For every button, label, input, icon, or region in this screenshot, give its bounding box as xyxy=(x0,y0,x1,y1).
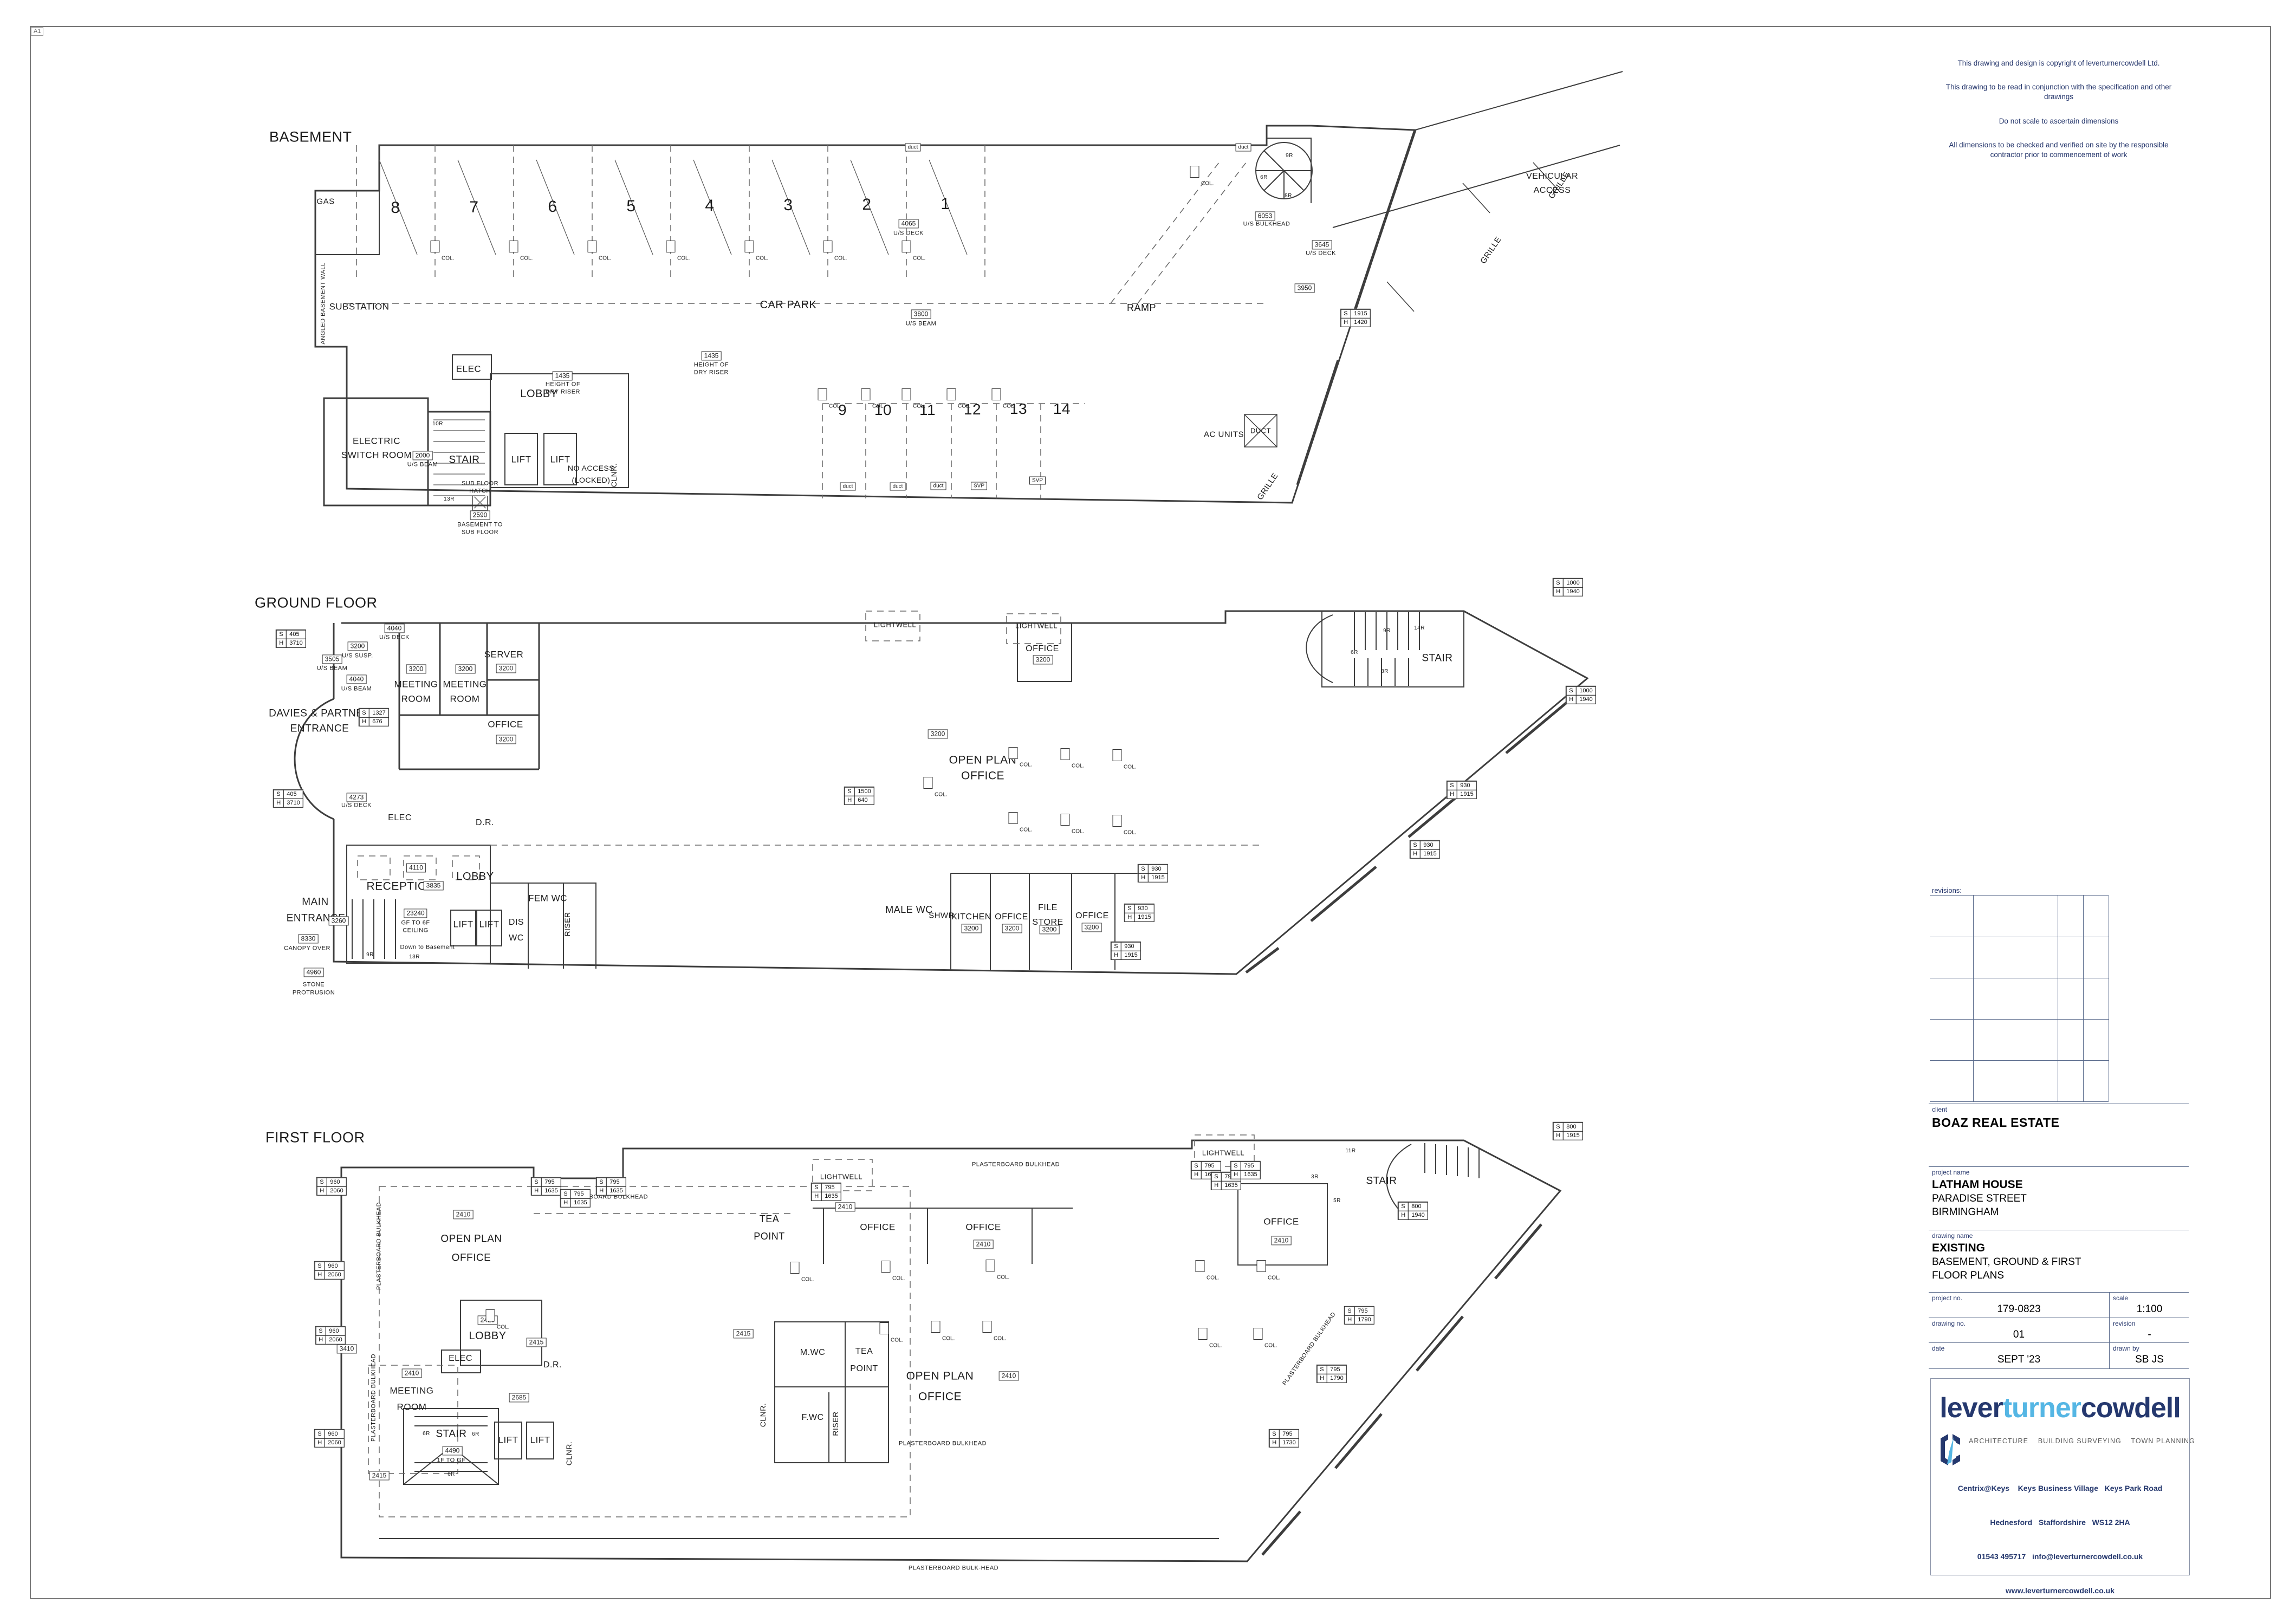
plan-label-clnr-: CLNR. xyxy=(610,463,618,488)
sh-cell: S xyxy=(273,789,284,799)
sh-cell: S xyxy=(316,1177,327,1186)
address-line-3: 01543 495717 info@leverturnercowdell.co.… xyxy=(1931,1551,2189,1562)
sh-cell: S xyxy=(1398,1202,1409,1211)
drawing-name-line3: FLOOR PLANS xyxy=(1929,1268,2189,1282)
plan-label-14r: 14R xyxy=(1414,626,1425,631)
dimension-box-duct: duct xyxy=(905,144,921,152)
plan-label-sub-floor: SUB FLOOR xyxy=(462,481,498,487)
column-marker xyxy=(431,241,440,252)
plan-label-11r: 11R xyxy=(1345,1149,1355,1154)
client-section: client BOAZ REAL ESTATE xyxy=(1929,1104,2189,1167)
column-marker xyxy=(924,777,933,789)
drawn-by-label: drawn by xyxy=(2110,1343,2189,1353)
plan-label-u-s-deck: U/S DECK xyxy=(341,803,372,809)
plan-label-3r: 3R xyxy=(1311,1175,1319,1180)
plan-label-riser: RISER xyxy=(832,1411,839,1436)
sh-cell: 1730 xyxy=(1279,1438,1299,1448)
column-label: COL. xyxy=(442,256,454,262)
sh-cell: 2060 xyxy=(327,1186,346,1196)
sh-cell: 1635 xyxy=(570,1198,590,1208)
plan-label-lightwell: LIGHTWELL xyxy=(820,1173,862,1180)
sh-cell: H xyxy=(1111,951,1121,960)
plan-label-d-r-: D.R. xyxy=(476,819,494,827)
sh-cell: 795 xyxy=(1327,1365,1346,1374)
plan-label-point: POINT xyxy=(754,1231,785,1241)
dimension-box-3260: 3260 xyxy=(329,916,349,925)
wordmark-cowdell: cowdell xyxy=(2081,1392,2181,1424)
project-no: 179-0823 xyxy=(1929,1303,2109,1315)
sh-cell: 2060 xyxy=(325,1270,344,1280)
address-line-1: Centrix@Keys Keys Business Village Keys … xyxy=(1931,1483,2189,1494)
plan-label-8r: 8R xyxy=(1285,193,1292,199)
plan-label-office: OFFICE xyxy=(995,913,1028,922)
sh-cell: S xyxy=(314,1261,325,1270)
project-name-line2: PARADISE STREET xyxy=(1929,1191,2189,1205)
sh-cell: 1327 xyxy=(369,708,388,717)
sh-cell: 795 xyxy=(570,1189,590,1198)
dimension-box-2415: 2415 xyxy=(369,1471,390,1480)
column-marker xyxy=(947,388,956,400)
plan-label-13r: 13R xyxy=(444,497,455,502)
structural-opening-dimension-box: S800H1915 xyxy=(1553,1122,1583,1140)
sh-cell: H xyxy=(1398,1211,1409,1220)
plan-label-lobby: LOBBY xyxy=(469,1331,506,1341)
sh-cell: S xyxy=(811,1183,822,1192)
date-value: SEPT '23 xyxy=(1929,1353,2109,1366)
column-label: COL. xyxy=(1264,1343,1277,1349)
structural-opening-dimension-box: S795H1635 xyxy=(1230,1161,1261,1179)
dimension-box-3505: 3505 xyxy=(322,654,342,664)
dimension-box-4110: 4110 xyxy=(406,863,426,872)
client-label: client xyxy=(1929,1104,2189,1114)
dimension-box-2410: 2410 xyxy=(453,1210,474,1219)
dimension-box-23240: 23240 xyxy=(404,909,427,918)
dimension-box-duct: duct xyxy=(1236,144,1251,152)
sh-cell: 1915 xyxy=(1420,849,1439,859)
title-block: This drawing and design is copyright of … xyxy=(1929,26,2189,1597)
sh-cell: 1790 xyxy=(1327,1374,1346,1383)
column-marker xyxy=(881,1261,891,1273)
structural-opening-dimension-box: S960H2060 xyxy=(314,1429,345,1448)
column-label: COL. xyxy=(1020,762,1032,768)
revisions-label: revisions: xyxy=(1932,886,1962,894)
plan-label-stone: STONE xyxy=(303,982,325,988)
column-marker xyxy=(1254,1328,1263,1340)
sh-cell: 2060 xyxy=(326,1335,345,1345)
dimension-box-3200: 3200 xyxy=(962,924,982,933)
plan-label-u-s-bulkhead: U/S BULKHEAD xyxy=(1243,222,1290,228)
plan-label-height-of: HEIGHT OF xyxy=(546,382,580,388)
sh-cell: 1635 xyxy=(1221,1181,1241,1190)
column-label: COL. xyxy=(520,256,533,262)
column-marker xyxy=(1061,814,1070,826)
project-section: project name LATHAM HOUSE PARADISE STREE… xyxy=(1929,1166,2189,1230)
sh-cell: 1940 xyxy=(1408,1211,1428,1220)
plan-label-office: OFFICE xyxy=(965,1223,1001,1232)
sh-cell: 676 xyxy=(369,717,388,726)
column-label: COL. xyxy=(1124,764,1136,770)
firm-logo-block: leverturnercowdell ARCHITECTURE BUILDING… xyxy=(1930,1378,2190,1575)
sh-cell: H xyxy=(844,796,855,805)
dimension-box-2410: 2410 xyxy=(974,1240,994,1249)
column-marker xyxy=(818,388,827,400)
column-marker xyxy=(880,1322,889,1334)
plan-label-plasterboard-bulkhead: PLASTERBOARD BULKHEAD xyxy=(371,1354,377,1442)
sh-cell: 795 xyxy=(606,1177,626,1186)
dimension-box-2590: 2590 xyxy=(470,510,490,520)
dimension-box-4960: 4960 xyxy=(304,968,324,977)
plan-label-8: 8 xyxy=(391,200,400,216)
sh-cell: H xyxy=(1191,1170,1202,1179)
sh-cell: H xyxy=(1553,1131,1564,1140)
sh-cell: H xyxy=(560,1198,571,1208)
plan-label-electric: ELECTRIC xyxy=(353,437,400,446)
plan-label-fem-wc: FEM WC xyxy=(528,894,567,903)
column-marker xyxy=(1190,166,1199,178)
structural-opening-dimension-box: S1915H1420 xyxy=(1340,309,1371,327)
plan-label-9r: 9R xyxy=(366,952,374,958)
column-label: COL. xyxy=(891,1338,903,1344)
column-marker xyxy=(1198,1328,1208,1340)
dimension-box-4040: 4040 xyxy=(347,674,367,684)
sh-cell: 405 xyxy=(283,789,303,799)
plan-label-entrance: ENTRANCE xyxy=(290,724,349,734)
sh-cell: H xyxy=(1124,913,1135,922)
plan-label-point: POINT xyxy=(850,1365,878,1373)
plan-label-open-plan: OPEN PLAN xyxy=(440,1234,502,1244)
dimension-box-6053: 6053 xyxy=(1255,211,1275,220)
plan-label-1: 1 xyxy=(941,196,950,212)
structural-opening-dimension-box: S930H1915 xyxy=(1410,840,1440,859)
sh-cell: H xyxy=(1138,873,1149,883)
sh-cell: 1000 xyxy=(1563,578,1582,587)
basement-stair-spiral xyxy=(1256,138,1312,203)
sh-cell: H xyxy=(531,1186,542,1196)
structural-opening-dimension-box: S930H1915 xyxy=(1111,942,1141,960)
drawing-name-label: drawing name xyxy=(1929,1230,2189,1241)
column-label: COL. xyxy=(834,256,847,262)
structural-opening-dimension-box: S930H1915 xyxy=(1447,781,1477,799)
date-label: date xyxy=(1929,1343,2109,1353)
sh-cell: S xyxy=(315,1326,326,1335)
plan-label-access: ACCESS xyxy=(1534,186,1571,195)
dimension-box-3200: 3200 xyxy=(1033,655,1053,664)
plan-label-office: OFFICE xyxy=(860,1223,895,1232)
dimension-box-8330: 8330 xyxy=(299,934,319,943)
structural-opening-dimension-box: S1327H676 xyxy=(359,708,389,726)
plan-label-office: OFFICE xyxy=(452,1253,491,1263)
column-label: COL. xyxy=(1020,827,1032,833)
plan-label-gf-to-6f: GF TO 6F xyxy=(401,920,430,926)
sh-cell: 1915 xyxy=(1148,873,1168,883)
plan-label-room: ROOM xyxy=(397,1403,427,1412)
plan-label-clnr-: CLNR. xyxy=(565,1442,573,1466)
revisions-table xyxy=(1930,895,2109,1101)
sh-cell: S xyxy=(844,787,855,796)
column-marker xyxy=(1196,1260,1205,1272)
plan-label-lift: LIFT xyxy=(453,920,474,929)
dimension-box-4040: 4040 xyxy=(385,624,405,633)
column-label: COL. xyxy=(1003,404,1015,410)
plan-label-first-floor: FIRST FLOOR xyxy=(265,1131,365,1145)
plan-label-lift: LIFT xyxy=(530,1436,550,1445)
dimension-box-duct: duct xyxy=(931,482,946,490)
plan-label-meeting: MEETING xyxy=(390,1386,434,1396)
structural-opening-dimension-box: S405H3710 xyxy=(276,630,306,648)
structural-opening-dimension-box: S1000H1940 xyxy=(1553,578,1583,596)
plan-label-14: 14 xyxy=(1053,401,1071,417)
column-marker xyxy=(745,241,754,252)
column-label: COL. xyxy=(1201,181,1214,187)
plan-label-stair: STAIR xyxy=(436,1429,466,1439)
column-marker xyxy=(983,1321,992,1333)
plan-label-5r: 5R xyxy=(1333,1198,1341,1204)
drawing-name-section: drawing name EXISTING BASEMENT, GROUND &… xyxy=(1929,1230,2189,1293)
sh-cell: 2060 xyxy=(325,1438,344,1448)
column-label: COL. xyxy=(497,1325,509,1331)
sh-cell: 930 xyxy=(1148,864,1168,873)
plan-label-ground-floor: GROUND FLOOR xyxy=(255,596,378,611)
sh-cell: 1635 xyxy=(821,1192,841,1201)
plan-label-office: OFFICE xyxy=(1263,1217,1299,1227)
plan-label-6r: 6R xyxy=(1351,650,1358,656)
plan-label-meeting: MEETING xyxy=(394,680,438,689)
plan-label-lift: LIFT xyxy=(511,455,531,464)
drawing-name-line1: EXISTING xyxy=(1929,1241,2189,1255)
dimension-box-3200: 3200 xyxy=(1002,924,1022,933)
column-marker xyxy=(486,1309,495,1321)
plan-label-lightwell: LIGHTWELL xyxy=(1202,1150,1244,1157)
revision-label: revision xyxy=(2110,1318,2189,1328)
address-line-2: Hednesford Staffordshire WS12 2HA xyxy=(1931,1517,2189,1528)
sh-cell: H xyxy=(314,1438,325,1448)
dimension-box-3835: 3835 xyxy=(424,881,444,890)
dimension-box-2410: 2410 xyxy=(999,1371,1019,1380)
dimension-box-2000: 2000 xyxy=(413,451,433,460)
sh-cell: 930 xyxy=(1457,781,1476,790)
sh-cell: S xyxy=(314,1429,325,1438)
column-marker xyxy=(902,388,911,400)
plan-label-protrusion: PROTRUSION xyxy=(293,990,335,996)
sh-cell: S xyxy=(1447,781,1457,790)
sh-cell: 640 xyxy=(854,796,874,805)
plan-label-male-wc: MALE WC xyxy=(885,905,933,914)
plan-label-3: 3 xyxy=(783,197,793,213)
plan-label-13r: 13R xyxy=(409,955,420,960)
structural-opening-dimension-box: S795H1635 xyxy=(596,1177,626,1196)
basement-walls xyxy=(315,126,1415,505)
dimension-box-3200: 3200 xyxy=(496,664,516,673)
column-marker xyxy=(992,388,1001,400)
structural-opening-dimension-box: S795H1790 xyxy=(1316,1365,1347,1383)
plan-label-ceiling: CEILING xyxy=(403,928,429,934)
structural-opening-dimension-box: S1000H1940 xyxy=(1566,686,1596,704)
column-marker xyxy=(1009,747,1018,759)
plan-label-6: 6 xyxy=(548,199,557,215)
sh-cell: 960 xyxy=(327,1177,346,1186)
sh-cell: 1940 xyxy=(1563,587,1582,596)
plan-label-duct: DUCT xyxy=(1250,427,1271,434)
sh-cell: S xyxy=(1340,309,1351,318)
scale-label: scale xyxy=(2110,1293,2189,1303)
structural-opening-dimension-box: S405H3710 xyxy=(273,789,303,808)
sh-cell: 800 xyxy=(1563,1122,1582,1131)
sh-cell: S xyxy=(596,1177,607,1186)
column-label: COL. xyxy=(942,1336,955,1342)
column-label: COL. xyxy=(872,404,885,410)
sh-cell: H xyxy=(314,1270,325,1280)
column-marker xyxy=(861,388,871,400)
sh-cell: S xyxy=(1138,864,1149,873)
structural-opening-dimension-box: S795H1635 xyxy=(811,1183,841,1201)
plan-label-f-wc: F.WC xyxy=(801,1413,823,1422)
plan-label-lightwell: LIGHTWELL xyxy=(1015,622,1058,630)
plan-label-down-to-basement: Down to Basement xyxy=(400,945,455,951)
sh-cell: 1915 xyxy=(1563,1131,1582,1140)
sh-cell: H xyxy=(1230,1170,1241,1179)
plan-label-u-s-deck: U/S DECK xyxy=(1306,251,1336,257)
column-label: COL. xyxy=(913,256,925,262)
sh-cell: H xyxy=(1344,1315,1355,1325)
sh-cell: 795 xyxy=(1279,1429,1299,1438)
drawingno-revision-row: drawing no. 01 revision - xyxy=(1929,1318,2189,1343)
sub-floor-hatch-symbol xyxy=(472,496,488,511)
drawing-no-label: drawing no. xyxy=(1929,1318,2109,1328)
plan-label-office: OFFICE xyxy=(961,770,1004,782)
sh-cell: S xyxy=(1344,1306,1355,1315)
firm-services: ARCHITECTURE BUILDING SURVEYING TOWN PLA… xyxy=(1969,1437,2185,1445)
plan-label-main: MAIN xyxy=(302,897,329,907)
plan-label-4: 4 xyxy=(705,198,714,214)
plan-label-lift: LIFT xyxy=(479,920,500,929)
basement-bays xyxy=(347,145,1268,498)
plan-label-plasterboard-bulkhead: PLASTERBOARD BULKHEAD xyxy=(377,1202,382,1290)
plan-label-open-plan: OPEN PLAN xyxy=(949,755,1017,766)
dimension-box-3950: 3950 xyxy=(1295,283,1315,293)
dimension-box-svp: SVP xyxy=(1029,477,1046,485)
plan-label-6r: 6R xyxy=(423,1431,430,1437)
structural-opening-dimension-box: S960H2060 xyxy=(316,1177,347,1196)
sh-cell: H xyxy=(1316,1374,1327,1383)
dimension-box-3410: 3410 xyxy=(337,1344,357,1353)
column-label: COL. xyxy=(935,792,947,798)
sh-cell: 1790 xyxy=(1354,1315,1374,1325)
plan-label-car-park: CAR PARK xyxy=(760,300,817,310)
dimension-box-3200: 3200 xyxy=(928,729,948,738)
plan-label-gas: GAS xyxy=(316,198,334,206)
sh-cell: 930 xyxy=(1420,840,1439,849)
plan-label-d-r-: D.R. xyxy=(543,1361,562,1370)
column-marker xyxy=(1257,1260,1266,1272)
sh-cell: S xyxy=(276,630,287,639)
sh-cell: S xyxy=(560,1189,571,1198)
sh-cell: 1915 xyxy=(1457,790,1476,799)
dimension-box-3200: 3200 xyxy=(496,735,516,744)
sh-cell: S xyxy=(531,1177,542,1186)
plan-label-2: 2 xyxy=(862,197,871,213)
column-label: COL. xyxy=(1207,1275,1219,1281)
sh-cell: H xyxy=(1447,790,1457,799)
plan-label-lightwell: LIGHTWELL xyxy=(874,621,916,628)
sh-cell: 1000 xyxy=(1576,686,1595,695)
dimension-box-4065: 4065 xyxy=(899,219,919,228)
structural-opening-dimension-box: S795H1635 xyxy=(560,1189,591,1208)
sh-cell: 960 xyxy=(325,1261,344,1270)
sh-cell: 1635 xyxy=(606,1186,626,1196)
firm-wordmark: leverturnercowdell xyxy=(1931,1392,2189,1424)
plan-label-plasterboard-bulkhead: PLASTERBOARD BULKHEAD xyxy=(972,1162,1060,1168)
plan-label-lobby: LOBBY xyxy=(520,388,557,399)
address-line-4: www.leverturnercowdell.co.uk xyxy=(1931,1585,2189,1597)
plan-label-7: 7 xyxy=(469,199,478,216)
plan-label-ac-units: AC UNITS xyxy=(1204,431,1244,439)
drawing-no: 01 xyxy=(1929,1328,2109,1341)
sh-cell: 1635 xyxy=(541,1186,561,1196)
dimension-box-2415: 2415 xyxy=(734,1329,754,1338)
sh-cell: H xyxy=(811,1192,822,1201)
project-name-line3: BIRMINGHAM xyxy=(1929,1205,2189,1218)
column-marker xyxy=(986,1260,995,1271)
sh-cell: H xyxy=(1553,587,1564,596)
plan-label-server: SERVER xyxy=(484,650,524,659)
sh-cell: H xyxy=(1211,1181,1222,1190)
column-marker xyxy=(1113,749,1122,761)
structural-opening-dimension-box: S930H1915 xyxy=(1124,904,1155,922)
plan-label-room: ROOM xyxy=(401,695,431,704)
dimension-box-duct: duct xyxy=(840,483,856,491)
general-note: This drawing to be read in conjunction w… xyxy=(1934,82,2183,102)
general-note: All dimensions to be checked and verifie… xyxy=(1934,140,2183,160)
sh-cell: 1915 xyxy=(1351,309,1370,318)
column-label: COL. xyxy=(913,404,925,410)
plan-label-elec: ELEC xyxy=(456,365,481,374)
plan-label-open-plan: OPEN PLAN xyxy=(906,1371,974,1382)
column-label: COL. xyxy=(1209,1343,1222,1349)
dimension-box-3800: 3800 xyxy=(911,309,931,319)
column-label: COL. xyxy=(1072,829,1084,835)
project-name-line1: LATHAM HOUSE xyxy=(1929,1177,2189,1191)
plan-label-wc: WC xyxy=(509,934,524,943)
dimension-box-2685: 2685 xyxy=(509,1393,529,1402)
plan-label-ramp: RAMP xyxy=(1127,303,1156,313)
column-label: COL. xyxy=(1268,1275,1280,1281)
plan-label-shwr: SHWR xyxy=(929,912,955,920)
sh-cell: 930 xyxy=(1121,942,1140,951)
plan-label-plasterboard-bulkhead: PLASTERBOARD BULKHEAD xyxy=(899,1441,987,1447)
drawing-name-line2: BASEMENT, GROUND & FIRST xyxy=(1929,1255,2189,1268)
sh-cell: S xyxy=(1316,1365,1327,1374)
wordmark-turner: turner xyxy=(2003,1392,2081,1424)
general-notes: This drawing and design is copyright of … xyxy=(1929,59,2189,174)
sh-cell: H xyxy=(1410,849,1421,859)
sh-cell: 795 xyxy=(541,1177,561,1186)
sh-cell: 795 xyxy=(1354,1306,1374,1315)
dimension-box-2410: 2410 xyxy=(402,1368,422,1378)
plan-label-m-wc: M.WC xyxy=(800,1348,825,1357)
general-note: This drawing and design is copyright of … xyxy=(1934,59,2183,68)
sh-cell: 930 xyxy=(1134,904,1154,913)
first-walls xyxy=(341,1140,1560,1561)
plan-label-lift: LIFT xyxy=(550,455,570,464)
sh-cell: 795 xyxy=(1201,1161,1221,1170)
sh-cell: 405 xyxy=(286,630,306,639)
scale-value: 1:100 xyxy=(2110,1303,2189,1315)
dimension-box-1435: 1435 xyxy=(702,351,722,360)
sh-cell: 1420 xyxy=(1351,318,1370,327)
plan-label-u-s-beam: U/S BEAM xyxy=(341,686,372,692)
sh-cell: 3710 xyxy=(286,639,306,648)
sh-cell: H xyxy=(1340,318,1351,327)
